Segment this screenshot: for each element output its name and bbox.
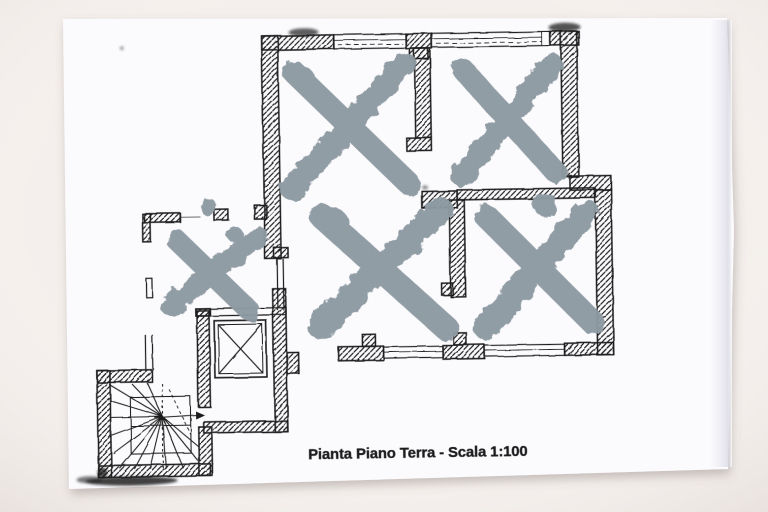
window-frame: [334, 34, 406, 49]
elevator-wall-stub: [287, 352, 299, 373]
wall-bottom-seg2: [443, 345, 485, 360]
annex-wall-vertical: [142, 214, 150, 242]
elevator-wall-bottom: [204, 421, 288, 433]
wall-bottom-seg3: [564, 343, 613, 356]
floor-plan-canvas: Pianta Piano Terra - Scala 1:100: [0, 0, 768, 512]
elevator-top-corner: [196, 309, 210, 316]
stair-wall-left: [97, 370, 112, 477]
wall-bottom-seg1: [339, 346, 384, 361]
stair-wall-right: [199, 427, 213, 476]
wall-bottom-pier1: [362, 334, 375, 346]
window-top-right: [432, 31, 551, 47]
wall-room-d-top: [457, 188, 595, 200]
wall-partition-foot-2: [442, 283, 453, 295]
annex-wall-stub: [214, 210, 228, 221]
window-bottom-left: [384, 346, 443, 358]
window-bottom-right: [485, 344, 565, 356]
stair-wall-bottom: [98, 464, 210, 478]
window-top-left: [334, 34, 406, 49]
wall-partition-top-rooms: [414, 48, 431, 137]
window-frame: [432, 31, 550, 47]
elevator-wall-right: [273, 289, 288, 432]
wall-outer-stub: [254, 205, 266, 219]
scanned-floor-plan-photo: Pianta Piano Terra - Scala 1:100: [0, 0, 768, 512]
paper-curl-shading: [710, 20, 732, 467]
elevator-wall-left: [197, 311, 211, 407]
wall-left-outer: [262, 36, 282, 259]
wall-right-upper: [561, 31, 579, 177]
wall-partition-foot: [406, 137, 431, 150]
wall-left-foot: [274, 248, 288, 258]
wall-top-pier: [406, 33, 432, 48]
